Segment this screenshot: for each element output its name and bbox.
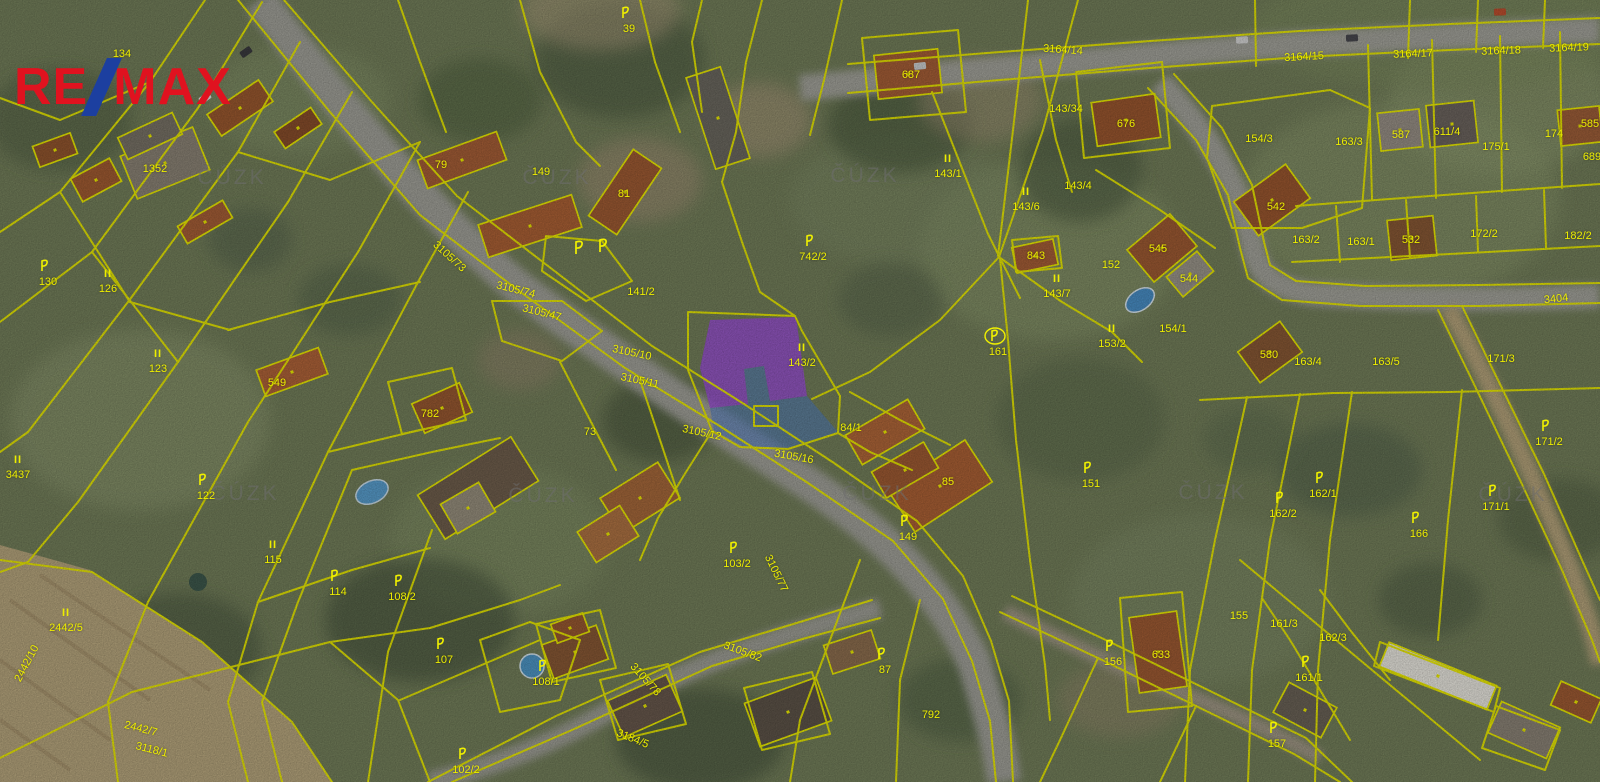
- parcel-label: 39: [623, 23, 635, 35]
- parcel-label: 102/2: [452, 764, 480, 776]
- parcel-label: 3404: [1543, 292, 1569, 306]
- parcel-label: 87: [879, 664, 891, 676]
- parcel-label: 544: [1180, 273, 1198, 285]
- parcel-label: 3164/17: [1393, 47, 1433, 60]
- parcel-label: 172/2: [1470, 228, 1498, 240]
- parcel-label: 163/3: [1335, 136, 1363, 148]
- parcel-label: 163/2: [1292, 234, 1320, 246]
- parcel-label: 633: [1152, 649, 1170, 661]
- parcel-label: 122: [197, 490, 215, 502]
- parcel-label: 689: [1583, 151, 1600, 163]
- parcel-label: 154/1: [1159, 323, 1187, 335]
- parcel-label: 143/6: [1012, 201, 1040, 213]
- parcel-label: 81: [618, 188, 630, 200]
- remax-logo-re: RE: [14, 61, 88, 113]
- parcel-label: 742/2: [799, 251, 827, 263]
- parcel-label: 792: [922, 709, 940, 721]
- ii-marker: II: [269, 539, 277, 551]
- parcel-label: 126: [99, 283, 117, 295]
- remax-logo-max: MAX: [113, 61, 232, 113]
- parcel-label: 687: [902, 69, 920, 81]
- parcel-label: 108/1: [532, 676, 560, 688]
- parcel-label: 161/3: [1270, 618, 1298, 630]
- cuzk-watermark: ČÚZK: [197, 166, 266, 189]
- parcel-label: 79: [435, 159, 447, 171]
- ii-marker: II: [104, 268, 112, 280]
- parcel-label: 108/2: [388, 591, 416, 603]
- parcel-label: 84/1: [840, 422, 861, 434]
- parcel-label: 174: [1545, 128, 1563, 140]
- aerial-map-canvas: ČÚZKČÚZKČÚZKČÚZKČÚZKČÚZKČÚZKČÚZK13413521…: [0, 0, 1600, 782]
- parcel-label: 3164/18: [1481, 44, 1521, 57]
- parcel-label: 85: [942, 476, 954, 488]
- parcel-label: 149: [899, 531, 917, 543]
- parcel-label: 3437: [6, 469, 30, 481]
- parcel-label: 542: [1267, 201, 1285, 213]
- parcel-label: 73: [584, 426, 596, 438]
- cuzk-watermark: ČÚZK: [1178, 481, 1247, 504]
- cadastral-map[interactable]: ČÚZKČÚZKČÚZKČÚZKČÚZKČÚZKČÚZKČÚZK13413521…: [0, 0, 1600, 782]
- ii-marker: II: [944, 153, 952, 165]
- parcel-label: 587: [1392, 129, 1410, 141]
- remax-logo: RE MAX: [14, 58, 232, 116]
- parcel-label: 1352: [143, 163, 167, 175]
- parcel-label: 115: [264, 554, 282, 566]
- parcel-label: 123: [149, 363, 167, 375]
- parcel-label: 143/2: [788, 357, 816, 369]
- ii-marker: II: [1053, 273, 1061, 285]
- parcel-label: 162/1: [1309, 488, 1337, 500]
- parcel-label: 114: [329, 586, 347, 598]
- cuzk-watermark: ČÚZK: [210, 482, 279, 505]
- parcel-label: 143/7: [1043, 288, 1071, 300]
- parcel-label: 3164/19: [1549, 41, 1589, 54]
- parcel-label: 162/3: [1319, 632, 1347, 644]
- parcel-label: 157: [1268, 738, 1286, 750]
- parcel-label: 175/1: [1482, 141, 1510, 153]
- parcel-label: 676: [1117, 118, 1135, 130]
- parcel-label: 153/2: [1098, 338, 1126, 350]
- cuzk-watermark: ČÚZK: [830, 164, 899, 187]
- parcel-label: 782: [421, 408, 439, 420]
- parcel-label: 154/3: [1245, 133, 1273, 145]
- parcel-label: 549: [268, 377, 286, 389]
- parcel-label: 149: [532, 166, 550, 178]
- parcel-label: 3164/15: [1284, 50, 1324, 64]
- cuzk-watermark: ČÚZK: [842, 482, 911, 505]
- parcel-label: 182/2: [1564, 230, 1592, 242]
- parcel-label: 107: [435, 654, 453, 666]
- parcel-label: 130: [39, 276, 57, 288]
- ii-marker: II: [798, 342, 806, 354]
- parcel-label: 156: [1104, 656, 1122, 668]
- parcel-label: 163/1: [1347, 236, 1375, 248]
- parcel-label: 161/1: [1295, 672, 1323, 684]
- parcel-label: 152: [1102, 259, 1120, 271]
- cuzk-watermark: ČÚZK: [508, 484, 577, 507]
- parcel-label: 2442/5: [49, 622, 83, 634]
- parcel-label: 103/2: [723, 558, 751, 570]
- ii-marker: II: [154, 348, 162, 360]
- ii-marker: II: [1022, 186, 1030, 198]
- ii-marker: II: [62, 607, 70, 619]
- parcel-label: 143/4: [1064, 180, 1092, 192]
- parcel-label: 532: [1402, 234, 1420, 246]
- parcel-label: 162/2: [1269, 508, 1297, 520]
- parcel-label: 143/1: [934, 168, 962, 180]
- parcel-label: 545: [1149, 243, 1167, 255]
- ii-marker: II: [14, 454, 22, 466]
- parcel-label: 171/1: [1482, 501, 1510, 513]
- parcel-label: 166: [1410, 528, 1428, 540]
- parcel-label: 171/3: [1487, 353, 1515, 365]
- parcel-label: 611/4: [1434, 126, 1461, 138]
- parcel-label: 171/2: [1535, 436, 1563, 448]
- ii-marker: II: [1108, 323, 1116, 335]
- parcel-label: 580: [1260, 349, 1278, 361]
- parcel-label: 151: [1082, 478, 1100, 490]
- parcel-label: 143/34: [1049, 103, 1083, 115]
- parcel-label: 843: [1027, 250, 1045, 262]
- parcel-label: 155: [1230, 610, 1248, 622]
- parcel-label: 141/2: [627, 286, 655, 298]
- parcel-label: 161: [989, 346, 1007, 358]
- parcel-label: 163/5: [1372, 356, 1400, 368]
- parcel-label: 585: [1581, 118, 1599, 130]
- parcel-label: 163/4: [1294, 356, 1322, 368]
